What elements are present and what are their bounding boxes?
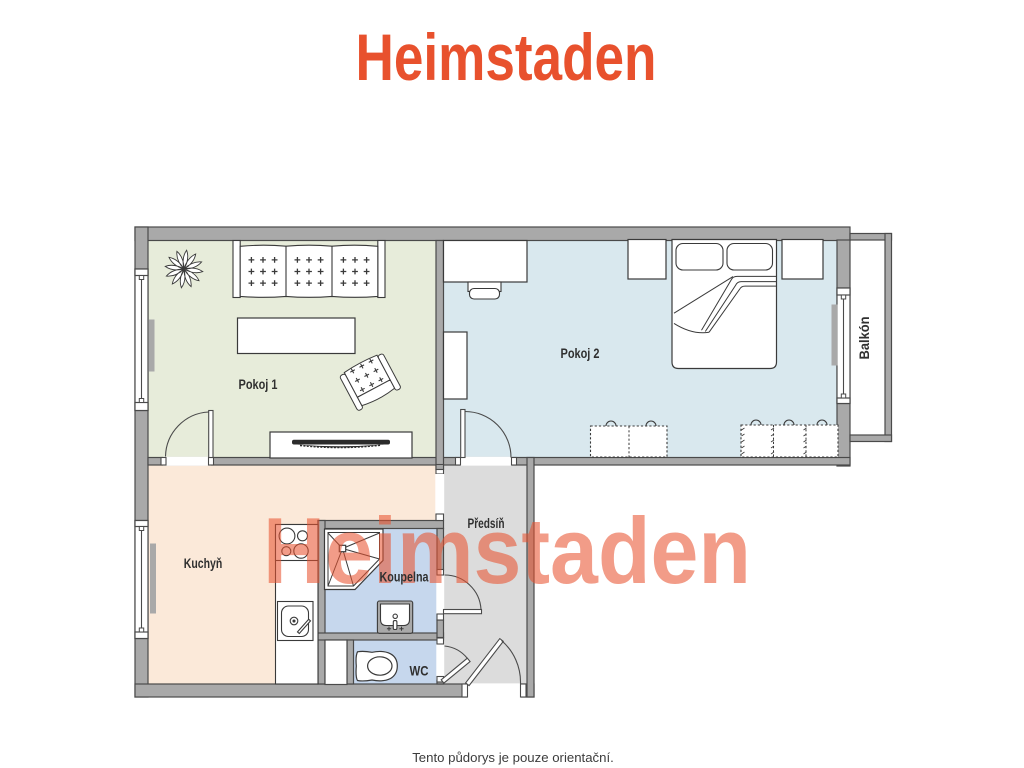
svg-text:Tento půdorys je pouze orienta: Tento půdorys je pouze orientační.	[412, 750, 614, 765]
svg-text:WC: WC	[410, 664, 429, 679]
svg-text:Koupelna: Koupelna	[380, 570, 429, 585]
svg-text:Pokoj 1: Pokoj 1	[239, 377, 278, 392]
svg-text:Pokoj 2: Pokoj 2	[561, 346, 600, 361]
svg-text:Heimstaden: Heimstaden	[356, 20, 657, 94]
svg-text:Heimstaden: Heimstaden	[263, 498, 751, 603]
svg-text:Předsíň: Předsíň	[468, 516, 505, 531]
svg-text:Kuchyň: Kuchyň	[184, 556, 223, 571]
svg-text:Balkón: Balkón	[857, 317, 872, 360]
